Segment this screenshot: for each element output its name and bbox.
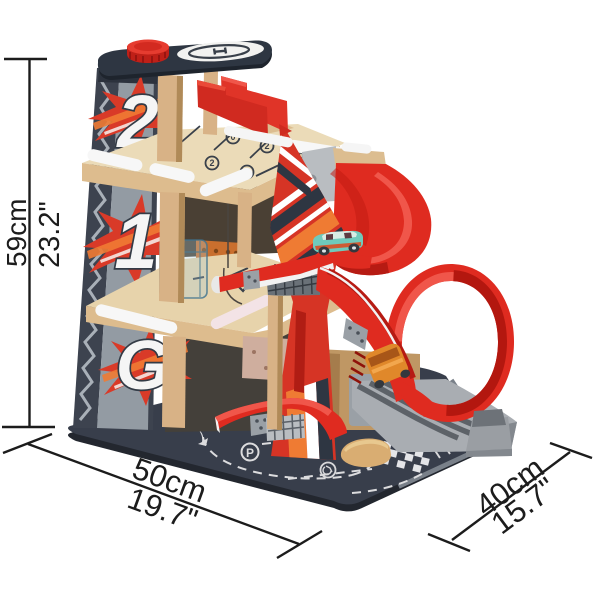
svg-text:23.2": 23.2"	[34, 201, 66, 268]
svg-text:1: 1	[114, 197, 157, 285]
svg-text:59cm: 59cm	[1, 199, 32, 267]
svg-text:G: G	[116, 326, 170, 404]
svg-text:P: P	[246, 446, 254, 460]
svg-text:2: 2	[209, 158, 214, 168]
